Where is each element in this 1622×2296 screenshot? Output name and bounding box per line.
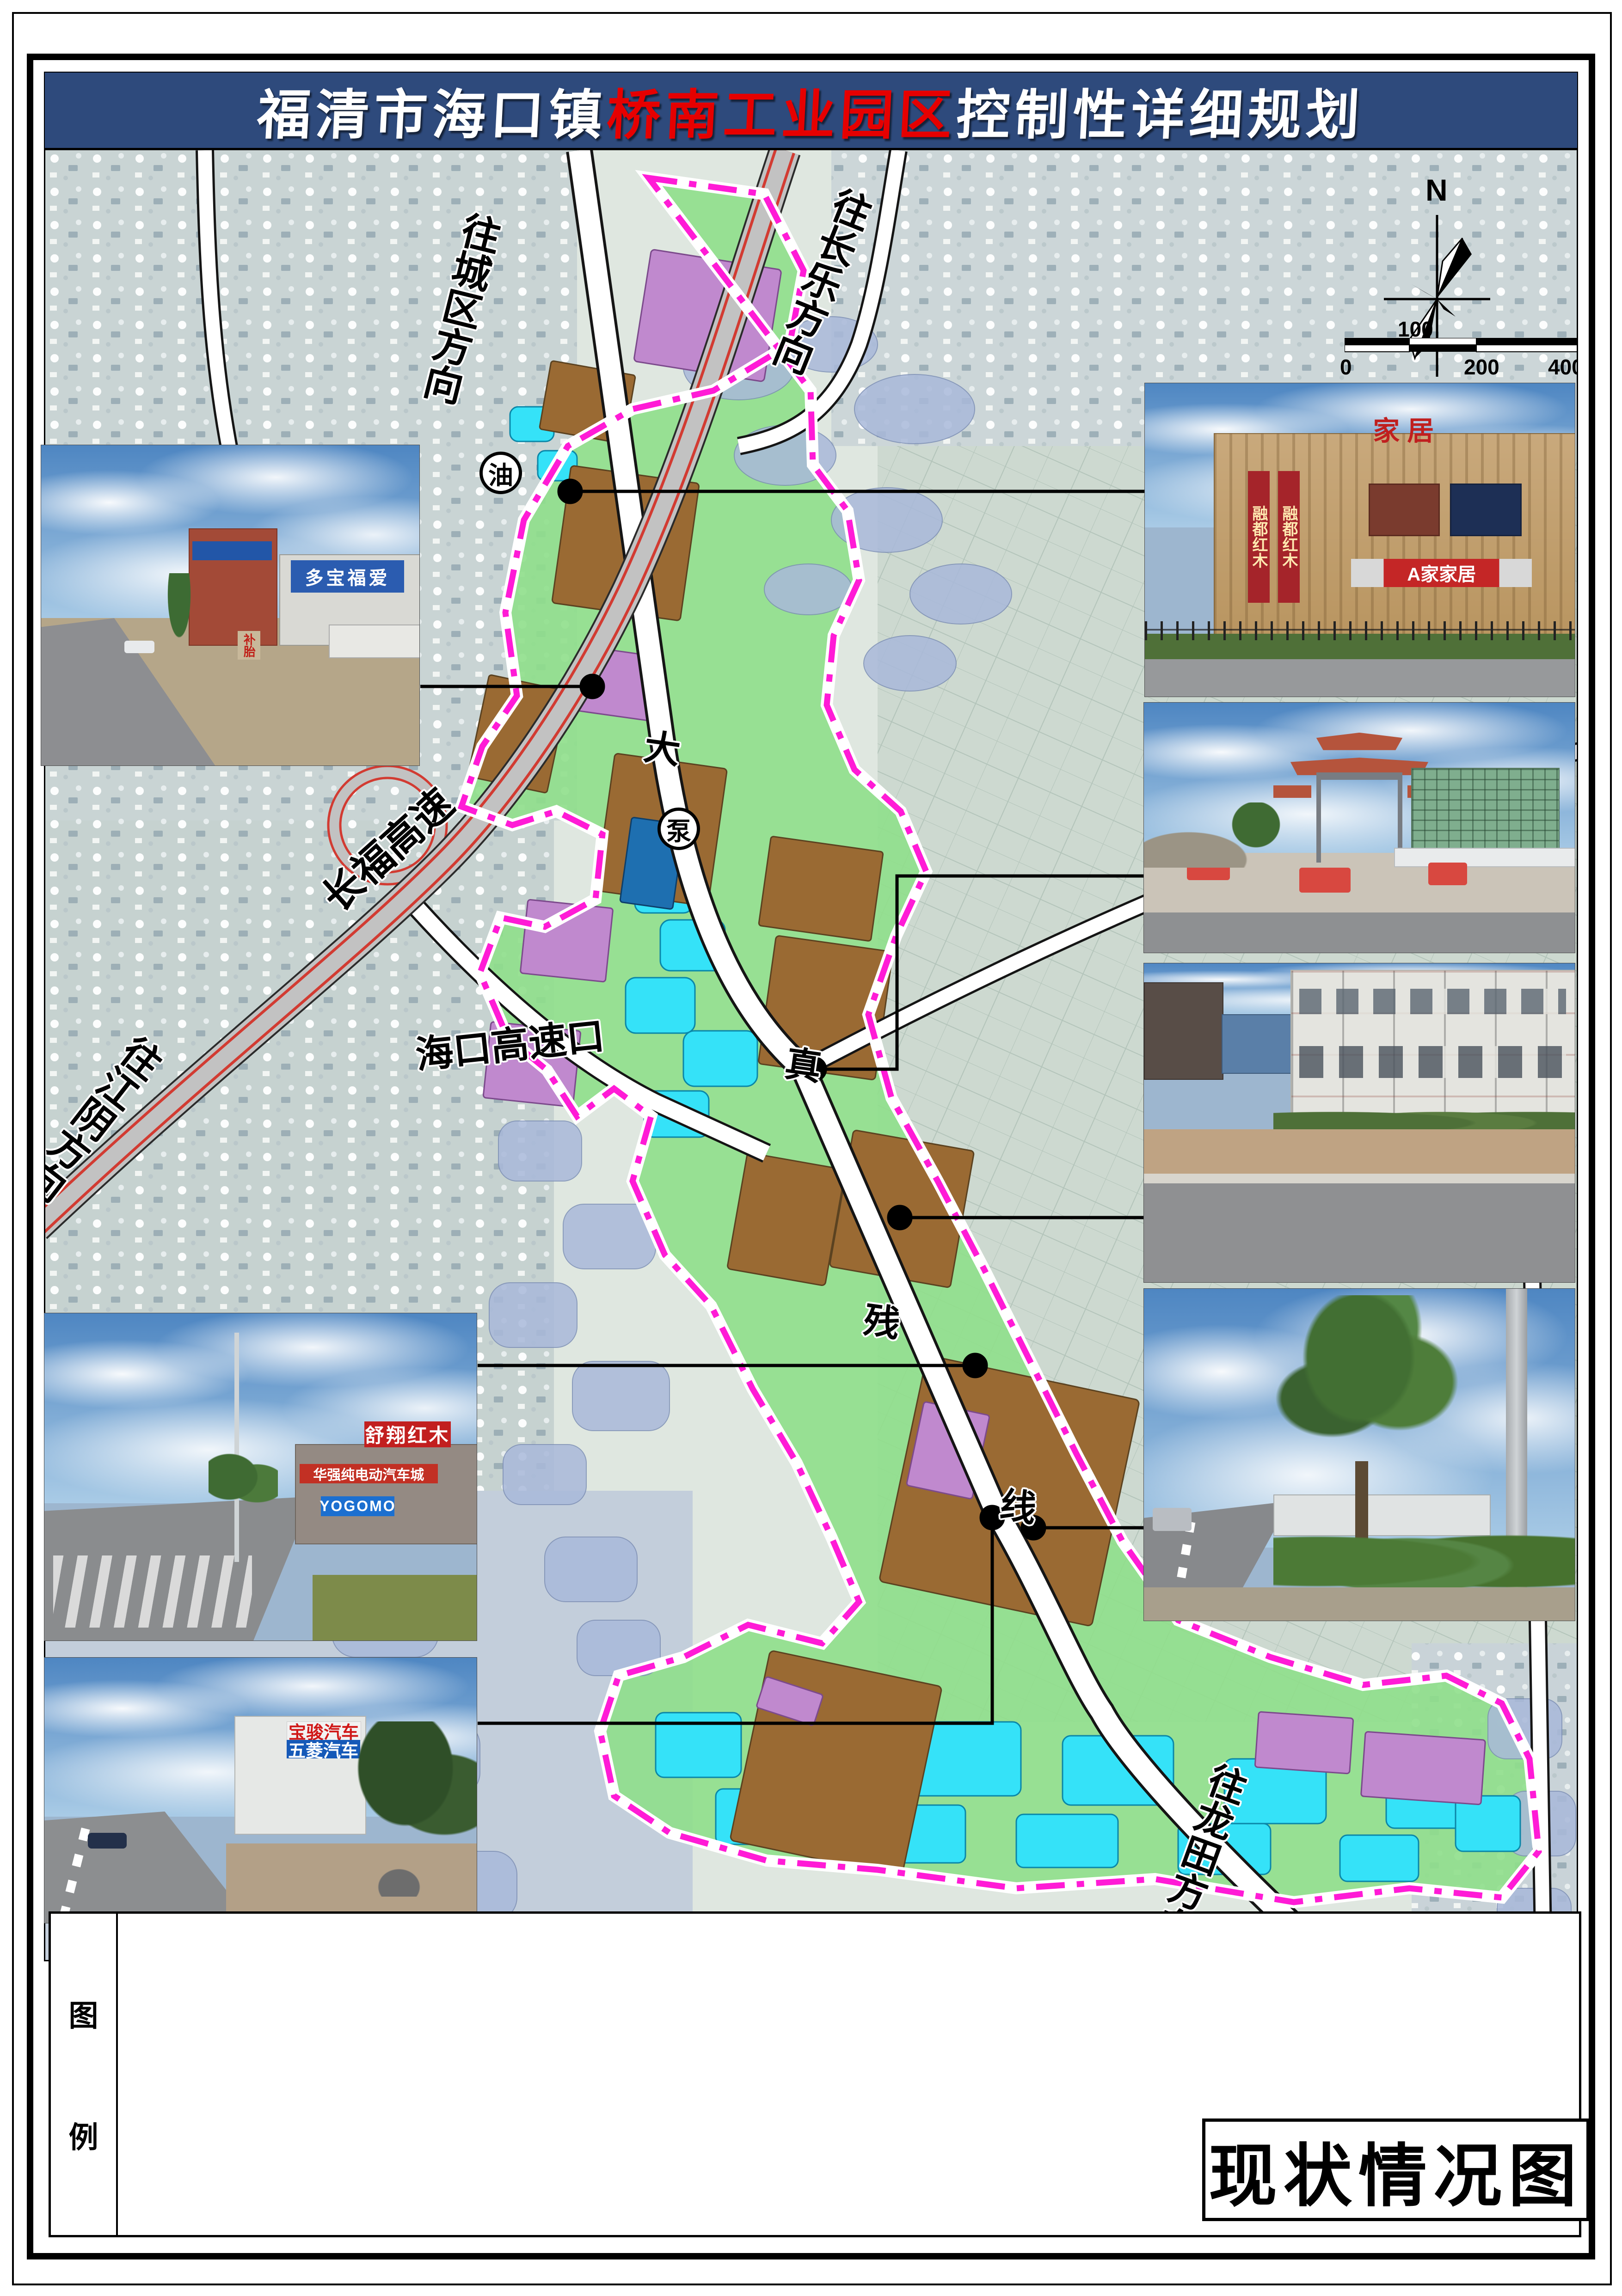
photo-tire-sign: 补胎 xyxy=(238,631,260,660)
photo-window-band2 xyxy=(1299,1046,1567,1078)
photo-blue-band: YOGOMO xyxy=(321,1496,394,1516)
photo-trees xyxy=(1222,802,1290,857)
title-part2: 控制性详细规划 xyxy=(955,86,1366,146)
photo-dark-building xyxy=(1144,982,1223,1080)
road-char-zhen: 真 xyxy=(783,1045,824,1087)
photo-street-left-bottom: 宝骏汽车 五菱汽车 xyxy=(44,1657,477,1923)
photo-white-buildings xyxy=(1143,963,1575,1283)
photo-grass xyxy=(313,1575,477,1641)
photo-tree-canopy xyxy=(1256,1295,1480,1501)
photo-buildings xyxy=(295,1444,477,1544)
title-highlight: 桥南工业园区 xyxy=(605,86,958,146)
photo-archway-construction xyxy=(1143,702,1575,953)
photo-blue-shed xyxy=(1222,1014,1292,1073)
photo-building-banner xyxy=(192,541,272,561)
title-banner: 福清市海口镇桥南工业园区控制性详细规划 xyxy=(44,72,1578,149)
caption-text: 现状情况图 xyxy=(1209,2120,1583,2220)
legend-char-top: 图 xyxy=(69,1992,98,2035)
road-char-xian: 线 xyxy=(998,1486,1039,1529)
photo-car xyxy=(88,1833,127,1849)
photo-dirt-strip xyxy=(1144,1129,1575,1180)
photo-trees xyxy=(209,1451,278,1516)
photo-barrier-2 xyxy=(1299,868,1351,893)
photo-road-tree xyxy=(1143,1288,1575,1621)
photo-barrier-3 xyxy=(1428,863,1467,885)
photo-tree xyxy=(166,573,192,643)
scale-400-label: 400m xyxy=(1548,355,1578,380)
caption-box: 现状情况图 xyxy=(1202,2118,1590,2221)
photo-storefront-band: A家家居 xyxy=(1351,559,1532,587)
legend-title-column: 图 例 xyxy=(51,1914,118,2235)
title-part1: 福清市海口镇 xyxy=(256,86,608,146)
north-label: N xyxy=(1425,172,1448,208)
gas-station-badge: 油 xyxy=(479,452,522,494)
photo-furniture-mall: 家居 融都红木 融都红木 A家家居 xyxy=(1144,383,1575,697)
photo-vertical-banner-1: 融都红木 xyxy=(1248,471,1270,603)
photo-street-left-mid: 舒翔红木 华强纯电动汽车城 YOGOMO xyxy=(44,1313,477,1641)
photo-road xyxy=(1144,1174,1575,1282)
photo-blue-sign: 多宝福爱 xyxy=(291,560,404,592)
photo-fence xyxy=(1145,621,1575,640)
photo-street-left-top: 多宝福爱 补胎 xyxy=(41,445,420,766)
photo-window-band xyxy=(1299,989,1567,1014)
photo-road xyxy=(1145,659,1575,697)
gas-station-char: 油 xyxy=(488,455,513,491)
photo-roof-sign: 舒翔红木 xyxy=(364,1421,451,1448)
scale-bar: 100 0 200 400m xyxy=(1345,317,1578,372)
photo-white-fence xyxy=(1394,848,1575,867)
pump-station-char: 泵 xyxy=(666,811,691,847)
photo-tree-dark xyxy=(347,1721,477,1854)
photo-crosswalk xyxy=(53,1555,252,1628)
photo-van xyxy=(1153,1508,1192,1531)
photo-roof-sign: 家居 xyxy=(1369,415,1446,443)
pump-station-badge: 泵 xyxy=(657,808,700,850)
photo-vertical-banner-2: 融都红木 xyxy=(1278,471,1300,603)
legend-char-bottom: 例 xyxy=(69,2114,98,2156)
road-char-can: 残 xyxy=(861,1301,903,1344)
photo-billboard-1 xyxy=(1369,484,1440,536)
north-letter: N xyxy=(1425,173,1448,207)
photo-curb xyxy=(1144,1174,1575,1183)
scale-0-label: 0 xyxy=(1340,355,1352,380)
photo-shrubs xyxy=(1273,1521,1575,1594)
photo-ground xyxy=(1144,1587,1575,1621)
scale-200-label: 200 xyxy=(1464,355,1499,380)
photo-lamp-pole xyxy=(234,1333,239,1562)
photo-red-banner: 华强纯电动汽车城 xyxy=(300,1464,438,1483)
photo-shed xyxy=(329,625,420,658)
photo-asphalt xyxy=(1144,912,1575,953)
page-title: 福清市海口镇桥南工业园区控制性详细规划 xyxy=(256,72,1367,149)
photo-billboard-2 xyxy=(1450,484,1522,536)
photo-gravel-pile xyxy=(373,1865,425,1897)
road-char-da: 大 xyxy=(642,728,683,771)
photo-car xyxy=(124,641,154,654)
